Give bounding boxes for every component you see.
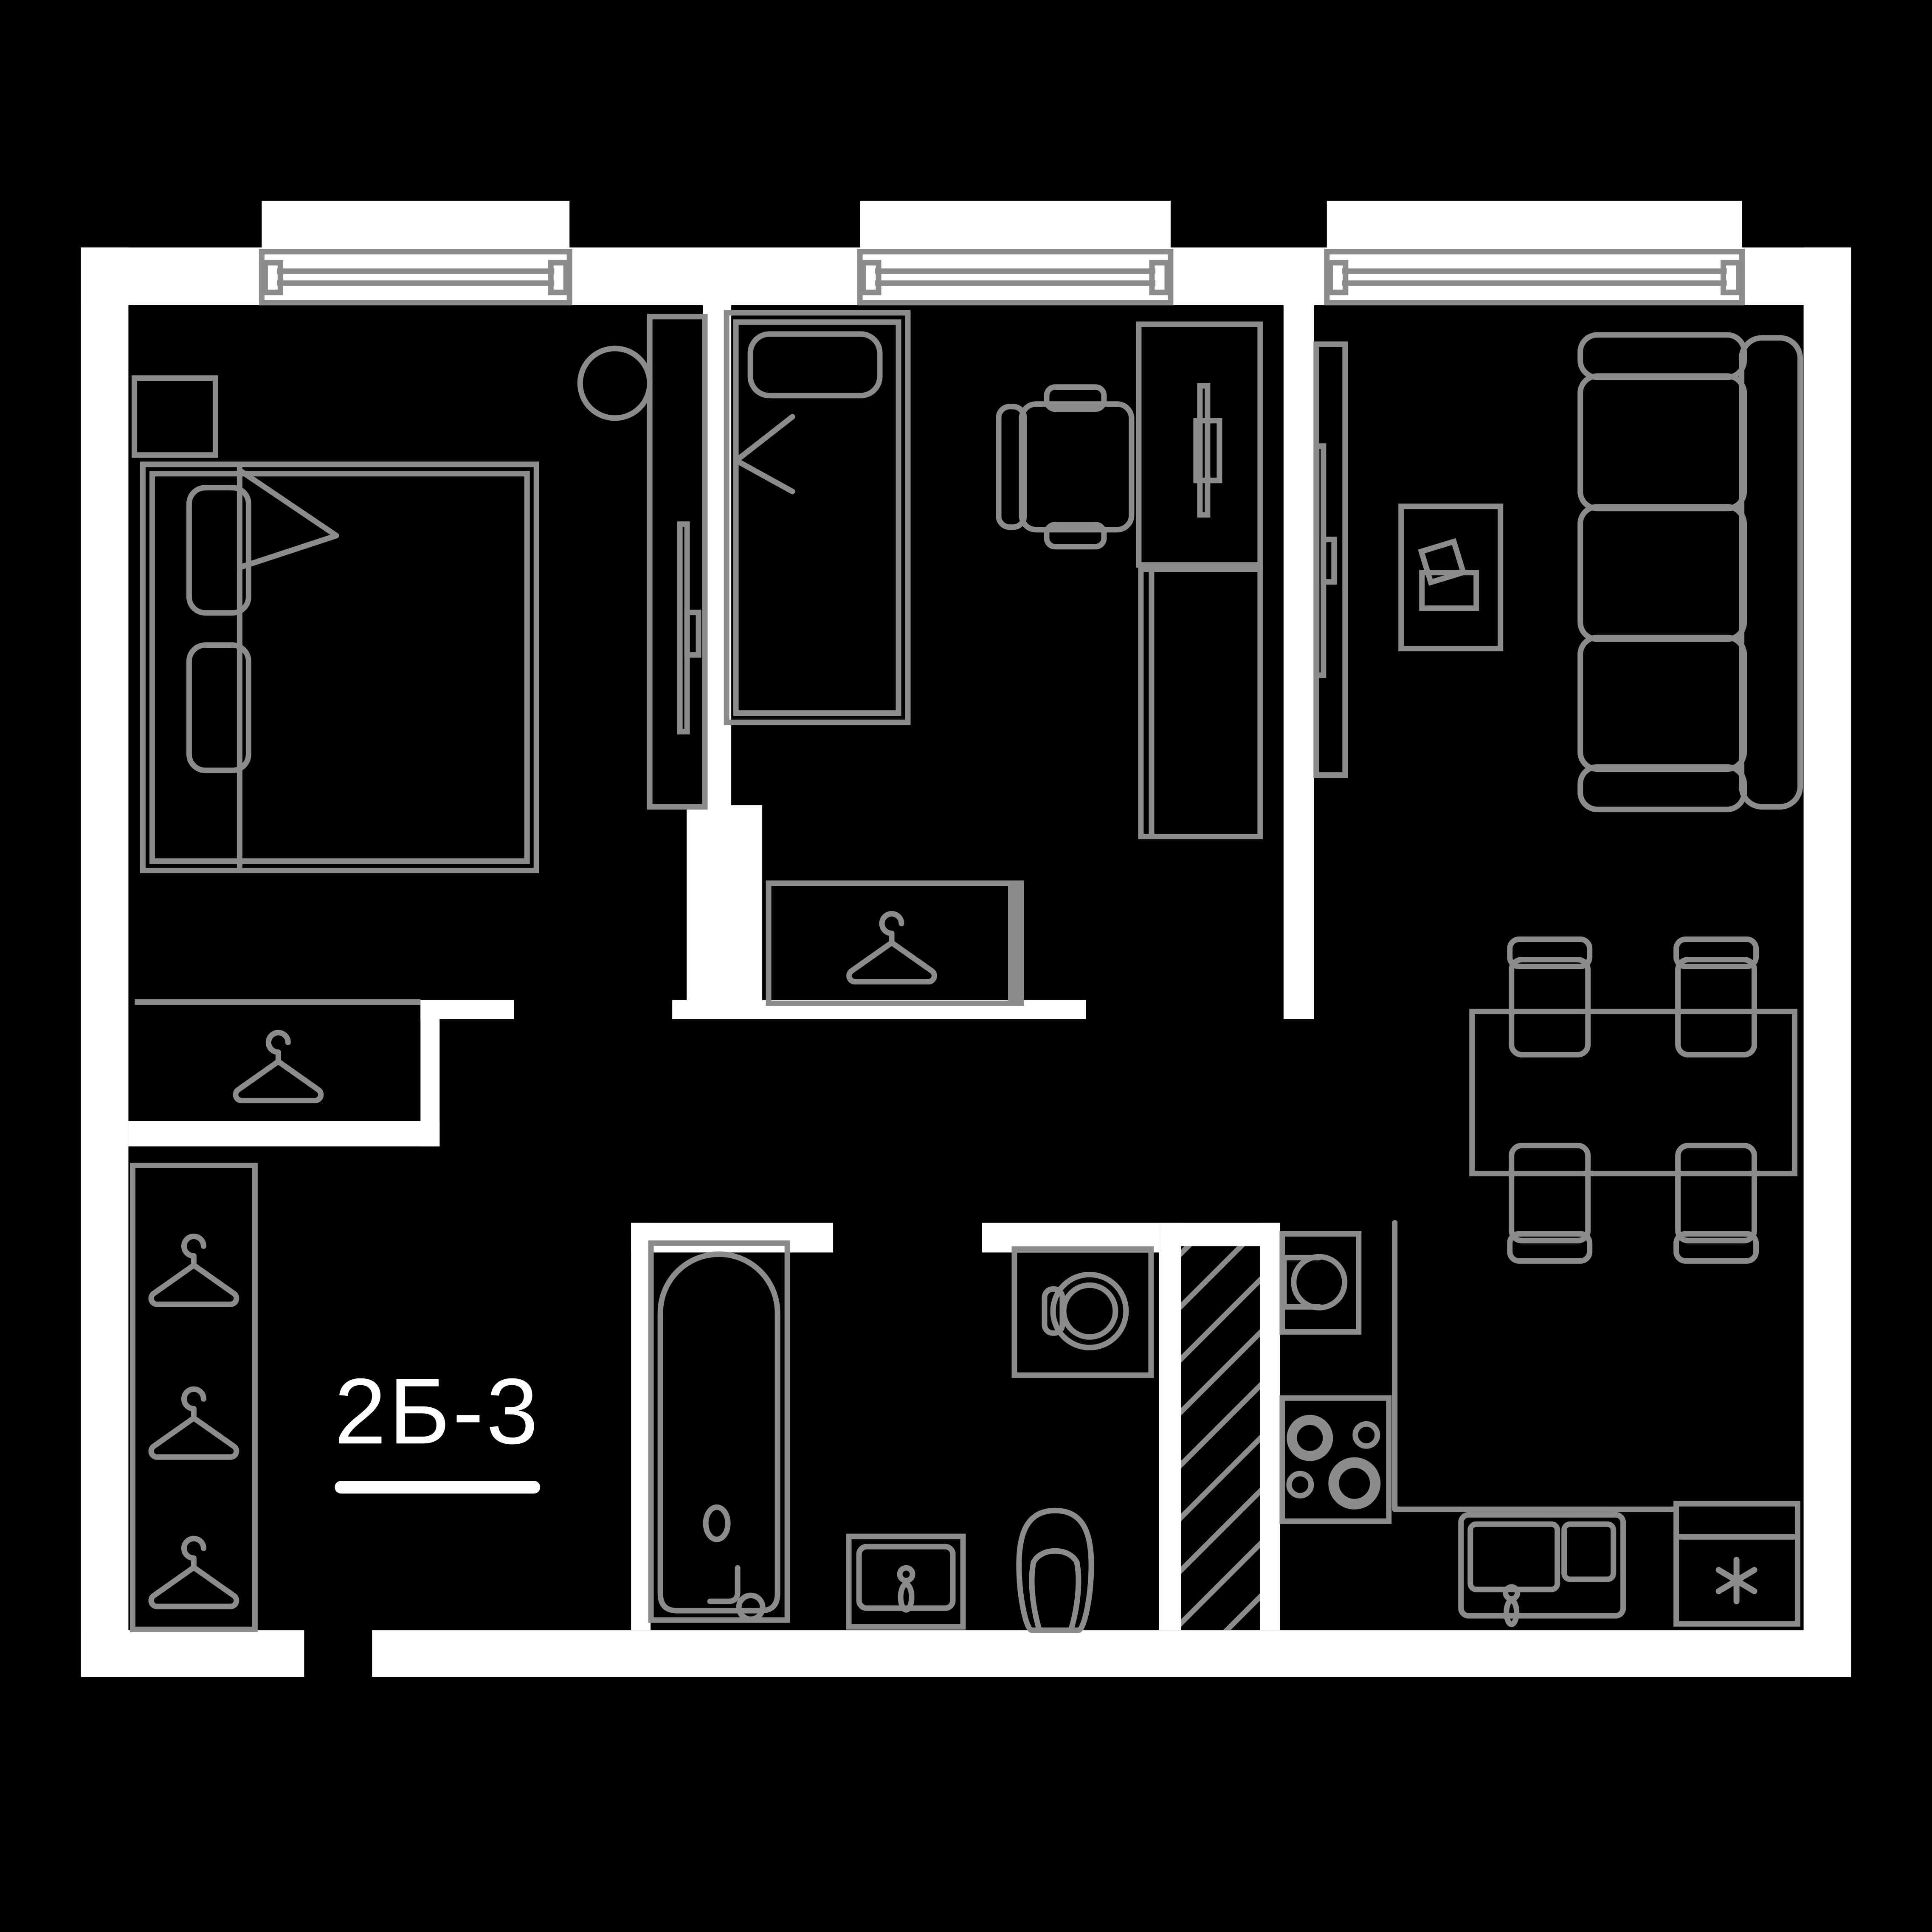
wall-room2-living [1284,304,1314,1019]
window-reveals [262,200,1742,251]
wall-room2-pilaster [687,805,762,1019]
wall-top [81,247,1851,305]
wall-duct-left [1159,1223,1181,1630]
window-reveal [262,200,569,251]
wall-left [81,247,128,1676]
floor-plan-page: 2Б-3 [0,0,1932,1932]
unit-label-underline [335,1481,540,1493]
wall-closet-bottom [128,1121,439,1146]
wall-bath-top [631,1223,833,1252]
wall-bottom-left [81,1630,304,1677]
floor-plan: 2Б-3 [0,0,1932,1932]
window-reveal [1327,200,1742,251]
window-reveal [860,200,1171,251]
wall-duct-right [1260,1223,1280,1630]
wall-bath-left [631,1223,651,1630]
unit-label: 2Б-3 [334,1359,541,1463]
duct-hatch-icon [1181,1246,1260,1630]
wall-bottom-main [372,1630,1851,1677]
wall-right [1804,247,1851,1676]
